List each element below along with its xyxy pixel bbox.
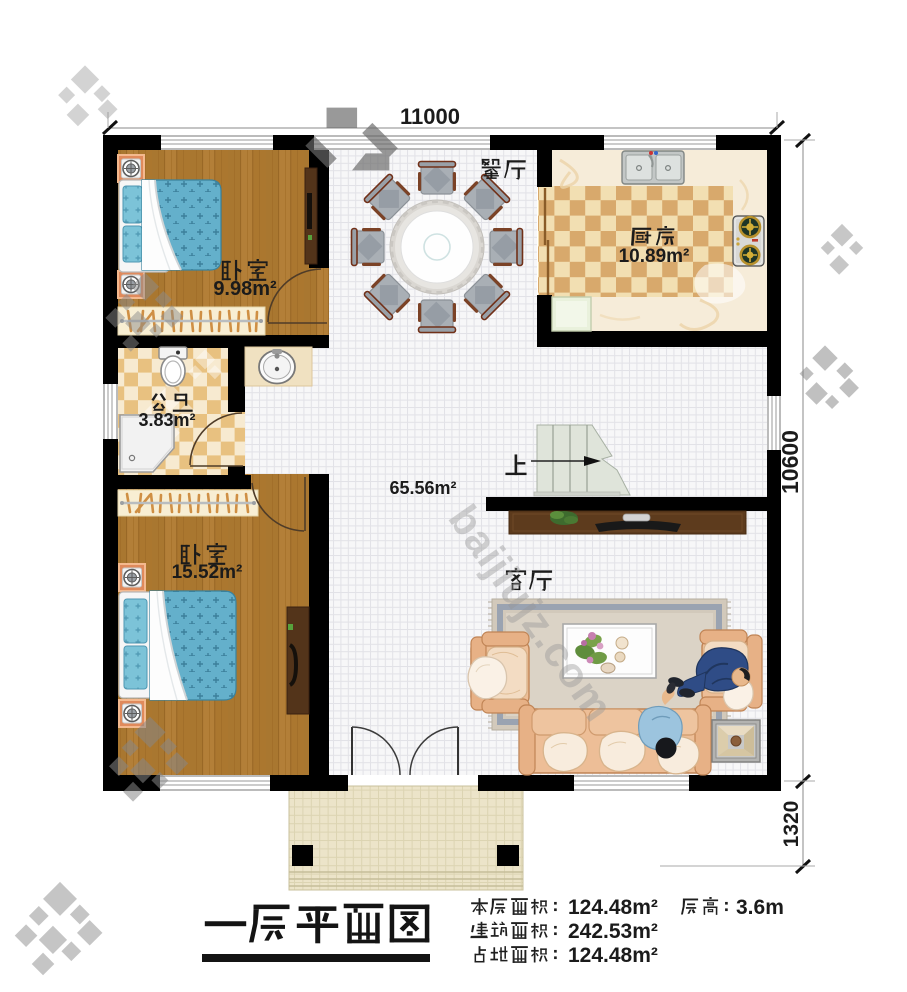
svg-text:1320: 1320: [780, 801, 803, 848]
svg-text:15.52m²: 15.52m²: [172, 562, 243, 583]
svg-text:10600: 10600: [777, 430, 803, 494]
svg-text:65.56m²: 65.56m²: [389, 478, 456, 498]
svg-text:242.53m²: 242.53m²: [568, 920, 658, 943]
svg-text:11000: 11000: [400, 104, 460, 129]
svg-text:3.6m: 3.6m: [736, 896, 784, 919]
svg-text:10.89m²: 10.89m²: [619, 246, 690, 267]
svg-text:3.83m²: 3.83m²: [138, 410, 195, 430]
svg-text:9.98m²: 9.98m²: [213, 278, 277, 300]
svg-text:124.48m²: 124.48m²: [568, 944, 658, 967]
svg-text:124.48m²: 124.48m²: [568, 896, 658, 919]
